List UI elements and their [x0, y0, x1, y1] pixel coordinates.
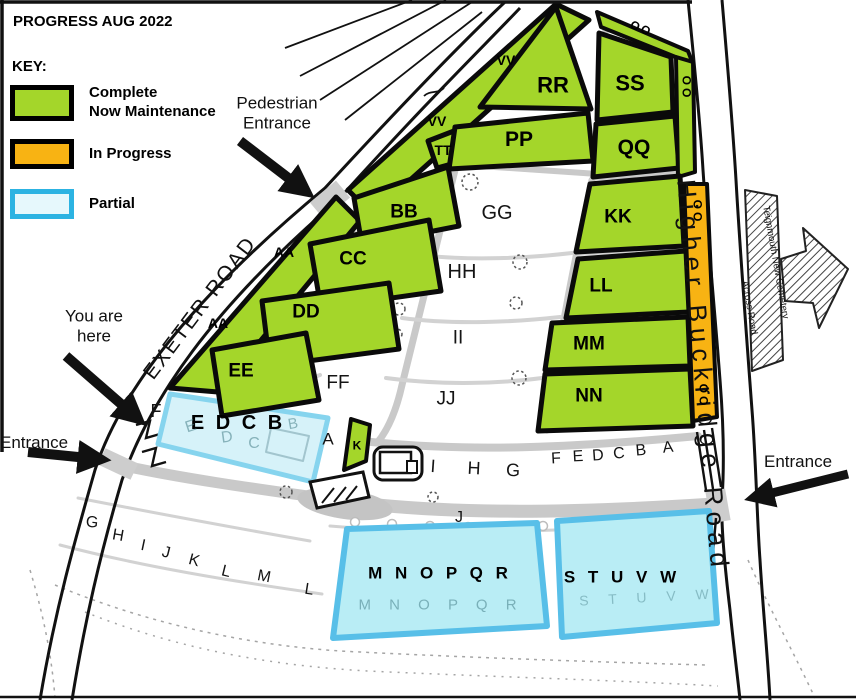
section-kk-label: KK — [604, 206, 631, 227]
entrance-right-arrow — [756, 474, 848, 497]
section-ll-label: LL — [589, 275, 612, 296]
section-mm-label: MM — [573, 333, 605, 354]
section-nn-label: NN — [575, 385, 602, 406]
section-stuvw-label: S T U V W — [564, 567, 680, 586]
section-ee-label: EE — [228, 360, 253, 381]
complete-label: Complete Now Maintenance — [89, 84, 216, 122]
complete-swatch — [10, 85, 74, 121]
key-item-complete: Complete Now Maintenance — [10, 84, 216, 122]
section-dd-label: DD — [292, 301, 319, 322]
key-heading: KEY: — [12, 58, 47, 75]
plot-row-letter: G — [85, 514, 99, 533]
section-oo-label-orange-bottom: OO — [696, 384, 709, 409]
key-item-partial: Partial — [10, 189, 135, 219]
faint-letter-c: C — [248, 435, 260, 453]
section-aa-label-2: AA — [208, 316, 228, 332]
partial-swatch — [10, 189, 74, 219]
plot-row-letter: E — [572, 448, 584, 466]
entrance-left-label: Entrance — [0, 433, 68, 453]
plot-row-letter: D — [592, 447, 605, 465]
plot-row-letter: G — [506, 461, 521, 481]
section-nn-shape — [538, 369, 693, 431]
plot-row-letter: H — [467, 459, 481, 479]
section-edcb-label: E D C B — [191, 412, 285, 434]
cemetery-progress-map: PROGRESS AUG 2022 KEY: Complete Now Main… — [0, 0, 856, 700]
section-mnopqr-label: M N O P Q R — [368, 563, 512, 582]
you-are-here-arrow — [66, 356, 136, 417]
map-title: PROGRESS AUG 2022 — [13, 13, 173, 30]
section-gg-label: GG — [481, 202, 512, 224]
section-ss-label: SS — [615, 72, 644, 97]
section-qq-label: QQ — [618, 136, 651, 160]
plot-row-letter: A — [662, 439, 674, 458]
section-vv-label-2: VV — [428, 114, 447, 130]
in-progress-label: In Progress — [89, 145, 172, 164]
section-jj-label: JJ — [437, 390, 456, 411]
you-are-here-label: You are here — [65, 307, 123, 348]
key-item-in-progress: In Progress — [10, 139, 172, 169]
plot-j-path-label: J — [455, 509, 463, 527]
section-oo-label-strip: OO — [679, 76, 692, 101]
section-ll-shape — [566, 251, 689, 318]
cemetery-sign-arrow — [745, 190, 848, 371]
section-rr-label: RR — [537, 74, 569, 99]
section-aa-label-1: AA — [274, 245, 294, 261]
section-bb-label: BB — [390, 201, 417, 222]
section-oo-label-orange-top: OO — [690, 200, 703, 225]
section-ii-label: II — [453, 329, 464, 350]
pedestrian-entrance-label: Pedestrian Entrance — [236, 94, 317, 135]
section-vv-label-1: VV — [497, 53, 516, 69]
in-progress-swatch — [10, 139, 74, 169]
section-tt-label: TT — [434, 143, 451, 159]
partial-label: Partial — [89, 195, 135, 214]
section-cc-label: CC — [339, 248, 366, 269]
plot-row-letter: C — [613, 445, 626, 463]
faint-letter-d: D — [220, 428, 234, 447]
plot-row-letter: B — [635, 442, 647, 460]
section-mm-shape — [545, 317, 690, 370]
section-pp-label: PP — [505, 128, 533, 152]
plot-a-label: A — [322, 431, 333, 450]
faint-mnopqr: M N O P Q R — [358, 597, 523, 614]
entrance-right-label: Entrance — [764, 452, 832, 472]
pedestrian-entrance-arrow — [240, 141, 304, 190]
section-hh-label: HH — [448, 261, 477, 283]
sign-arrowhead — [781, 228, 848, 328]
section-ff-label: FF — [326, 374, 349, 395]
chapel-building — [374, 447, 422, 480]
section-f-label: F — [151, 402, 162, 422]
plot-row-letter: F — [551, 450, 562, 468]
section-k-label: K — [353, 439, 362, 452]
